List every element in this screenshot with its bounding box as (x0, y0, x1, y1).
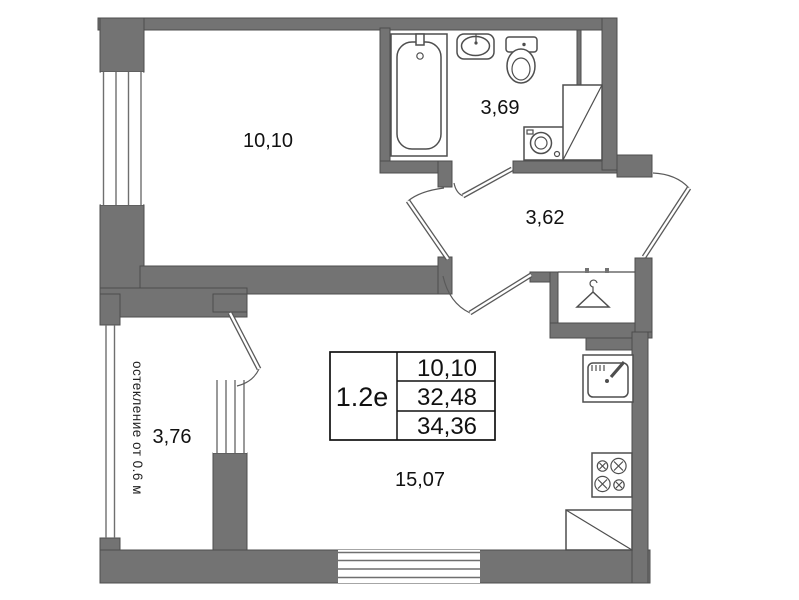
kitchen-sink-icon (583, 355, 633, 402)
washing-machine-icon (524, 127, 565, 160)
entrance-door-icon (644, 173, 689, 257)
balcony-door-icon (230, 313, 259, 386)
sink-icon (457, 34, 494, 59)
counter-icon (566, 510, 632, 550)
bathroom-area-label: 3,69 (481, 97, 520, 119)
wall-niche-right (635, 258, 652, 332)
bedroom-door-icon (408, 188, 448, 259)
stove-icon (592, 453, 632, 497)
floor-plan: 1.2e 10,10 32,48 34,36 10,10 3,69 3,62 3… (0, 0, 799, 600)
wall-kitchen-duct (586, 338, 633, 350)
wall-bedroom-door-jamb-top (438, 161, 452, 187)
bathroom-door-icon (454, 169, 512, 196)
wall-bath-left (380, 28, 390, 161)
wall-top-left-block (100, 18, 144, 72)
unit-total-area: 34,36 (417, 413, 477, 440)
balcony-partition-window-icon (213, 380, 247, 453)
bedroom-window-icon (101, 72, 143, 205)
unit-living-area: 32,48 (417, 384, 477, 411)
balcony-glazing-icon (106, 325, 115, 538)
glazing-note-label: остекление от 0.6 м (130, 361, 145, 495)
wall-balcony-left-strip (100, 294, 120, 325)
wall-top (98, 18, 617, 30)
living-area-label: 15,07 (395, 469, 445, 491)
bathtub-icon (391, 34, 447, 156)
unit-room-area: 10,10 (417, 355, 477, 382)
balcony-area-label: 3,76 (153, 426, 192, 448)
wall-bedroom-door-jamb-bottom (438, 257, 452, 294)
wall-kitchen-right (632, 332, 648, 583)
info-table: 1.2e 10,10 32,48 34,36 (330, 352, 495, 440)
hall-living-door-icon (443, 275, 531, 313)
wall-right-top (602, 18, 617, 170)
living-window-icon (338, 550, 480, 583)
wall-balcony-left-bottom-block (100, 538, 120, 550)
wall-entry-block (617, 155, 652, 177)
duct-cabinet-icon (563, 85, 602, 160)
wall-partition-bottom (213, 453, 247, 550)
toilet-icon (506, 37, 537, 83)
unit-type-label: 1.2e (336, 382, 389, 412)
wall-niche-left (550, 272, 558, 323)
wall-left-block (100, 205, 144, 294)
floor-plan-page: 1.2e 10,10 32,48 34,36 10,10 3,69 3,62 3… (0, 0, 799, 600)
wall-partition-top (213, 294, 247, 312)
bedroom-area-label: 10,10 (243, 130, 293, 152)
wall-shaft-divider (577, 30, 581, 85)
hallway-area-label: 3,62 (526, 207, 565, 229)
wardrobe-hanger-icon (558, 268, 635, 307)
